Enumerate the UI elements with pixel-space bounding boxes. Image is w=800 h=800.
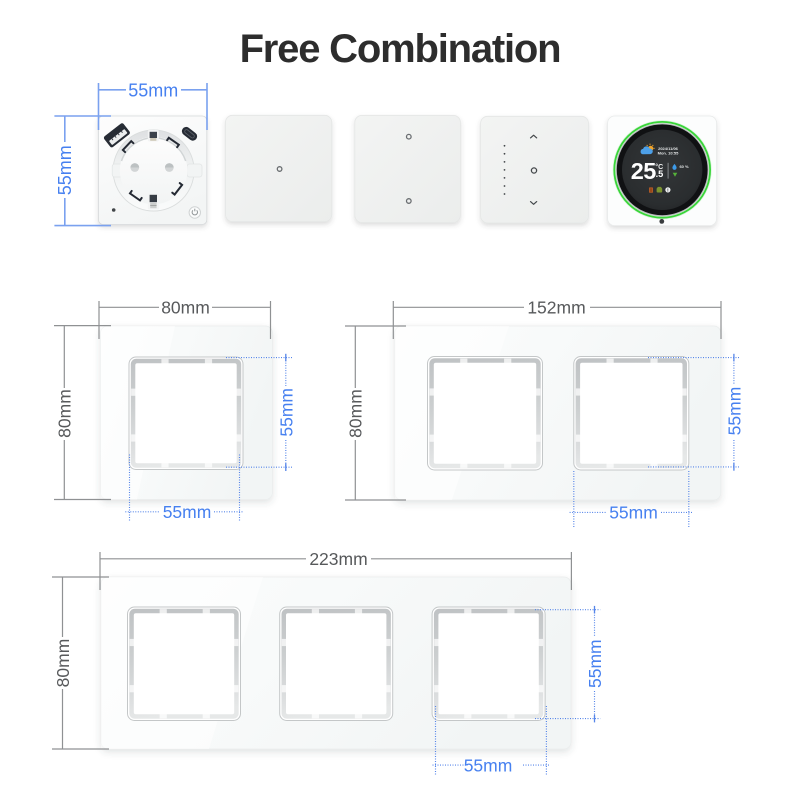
svg-text:80mm: 80mm [55,389,75,438]
svg-text:55mm: 55mm [128,80,178,100]
svg-text:55mm: 55mm [55,145,75,195]
svg-text:55mm: 55mm [276,388,296,437]
svg-text:55mm: 55mm [725,387,745,436]
svg-text:.5: .5 [656,169,664,179]
svg-text:80mm: 80mm [161,297,210,317]
svg-text:60 %: 60 % [679,164,689,169]
svg-text:55mm: 55mm [609,503,658,523]
svg-text:55mm: 55mm [464,755,513,775]
svg-text:Mon. 10:55: Mon. 10:55 [658,150,679,155]
svg-text:55mm: 55mm [585,639,605,688]
svg-text:80mm: 80mm [346,389,366,438]
svg-text:55mm: 55mm [163,502,212,522]
svg-text:80mm: 80mm [53,639,73,688]
svg-text:152mm: 152mm [527,297,585,317]
svg-text:Free Combination: Free Combination [240,27,561,71]
svg-text:223mm: 223mm [309,549,367,569]
svg-text:25: 25 [631,158,657,184]
